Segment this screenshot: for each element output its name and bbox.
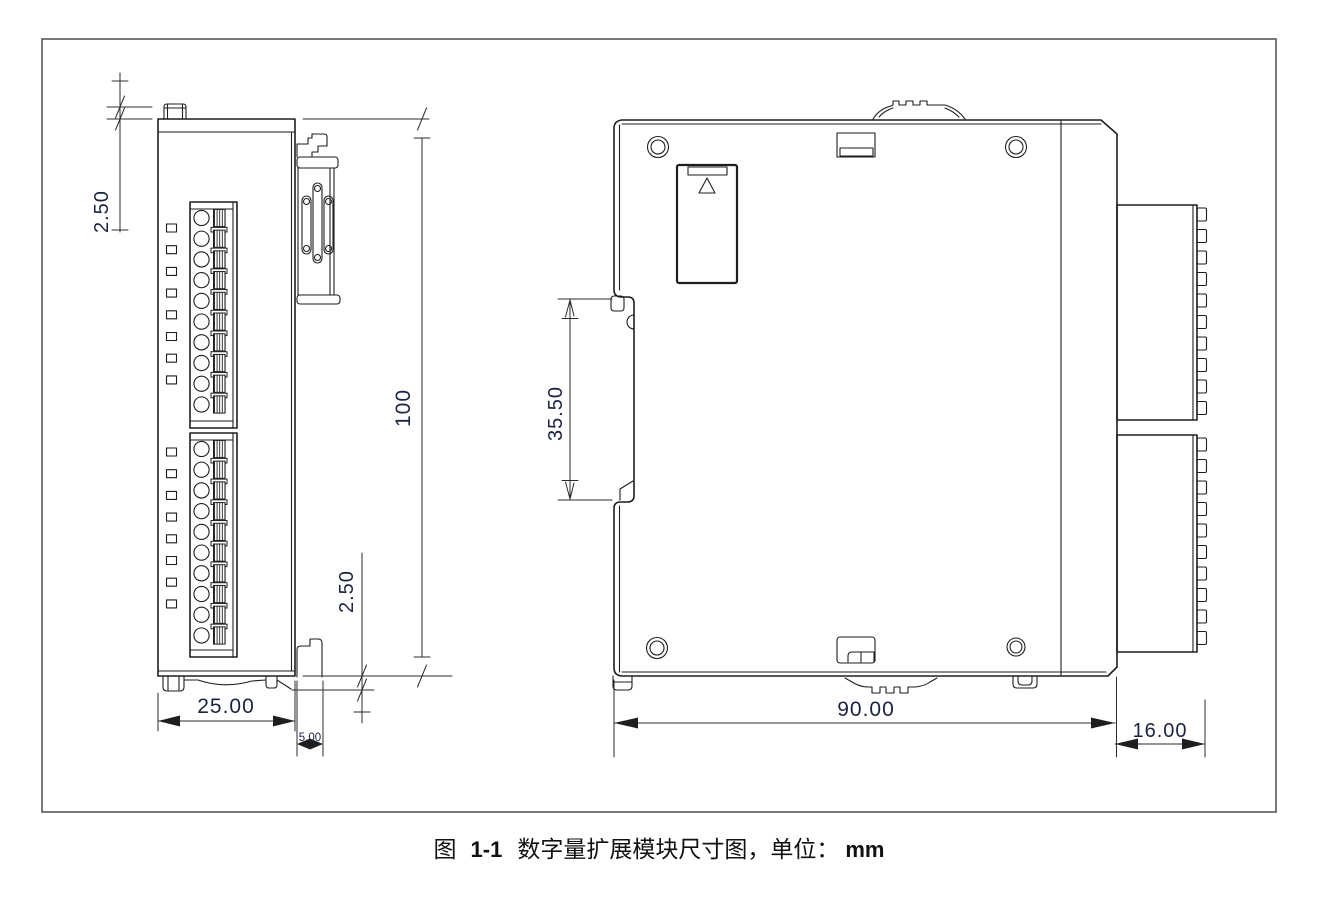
caption-title: 数字量扩展模块尺寸图，单位： (517, 837, 839, 862)
connector-ridge (1197, 546, 1207, 559)
connector-ridge (1197, 337, 1207, 350)
led-indicator (167, 491, 177, 499)
module-body-side (614, 120, 1117, 676)
din-hook (611, 296, 624, 311)
dimension-drawing: 2.50 100 25.00 (0, 0, 1319, 897)
connector-ridge (1197, 481, 1207, 494)
terminal-screw-hole (194, 441, 209, 456)
connector-lower (1117, 435, 1197, 652)
dim-label-din-slot-height: 35.50 (545, 386, 567, 441)
connector-ridge (1197, 251, 1207, 264)
connector-ridge (1197, 610, 1207, 623)
connector-ridge (1197, 632, 1207, 645)
led-indicator (167, 557, 177, 565)
terminal-positions (194, 209, 227, 644)
card-door (677, 165, 737, 283)
terminal-clamp (214, 523, 226, 540)
dim-label-front-height: 100 (392, 389, 415, 427)
connector-ridge (1197, 524, 1207, 537)
rear-bracket (297, 134, 340, 677)
caption-unit: mm (845, 837, 884, 862)
grip-comb-top (873, 101, 965, 119)
foot-tab-left (613, 676, 632, 690)
led-indicator (167, 246, 177, 254)
terminal-clamp (214, 565, 226, 582)
dim-label-front-top-offset: 2.50 (91, 190, 113, 233)
connector-upper (1117, 205, 1197, 420)
rear-hook-bottom (297, 639, 322, 677)
led-indicator (167, 448, 177, 456)
terminal-screw-hole (194, 628, 209, 643)
terminal-screw-hole (194, 252, 209, 267)
connector-ridge (1197, 438, 1207, 451)
connector-ridges (1197, 208, 1207, 645)
dim-label-front-width: 25.00 (197, 695, 255, 718)
screw-hole-icon (648, 137, 669, 158)
terminal-screw-hole (194, 355, 209, 370)
connector-ridge (1197, 208, 1207, 221)
rear-plate (298, 168, 334, 295)
terminal-clamp (214, 292, 226, 309)
terminal-clamp (214, 396, 226, 413)
din-latch (837, 637, 875, 663)
terminal-clamp (214, 209, 226, 226)
dim-label-side-depth: 90.00 (837, 698, 895, 721)
led-indicator (167, 311, 177, 319)
terminal-clamp (214, 585, 226, 602)
screw-hole-icon (1007, 638, 1025, 656)
terminal-screw-hole (194, 566, 209, 581)
terminal-clamp (214, 544, 226, 561)
side-view (611, 101, 1207, 693)
terminal-screw-hole (194, 397, 209, 412)
led-indicators (167, 224, 177, 608)
dim-front-top-offset: 2.50 (91, 73, 152, 233)
led-indicator (167, 535, 177, 543)
mount-slot-top (837, 133, 875, 157)
terminal-clamp (214, 251, 226, 268)
caption-fig-label: 图 (434, 837, 457, 862)
connector-ridge (1197, 316, 1207, 329)
top-button (164, 104, 186, 119)
foot-tab-right (1013, 676, 1037, 688)
din-foot (620, 481, 633, 500)
rear-hook-top (297, 134, 327, 157)
document-page: 2.50 100 25.00 (0, 0, 1319, 897)
rear-plate-bottom-cap (297, 295, 340, 304)
dim-front-height: 100 (303, 108, 452, 687)
connector-ridge (1197, 589, 1207, 602)
din-clip-front (163, 676, 291, 691)
terminal-screw-hole (194, 376, 209, 391)
din-groove-notch (627, 315, 634, 329)
dim-front-bottom-offset: 2.50 (292, 553, 374, 723)
connector-ridge (1197, 567, 1207, 580)
terminal-clamp (214, 230, 226, 247)
terminal-clamp (214, 606, 226, 623)
led-indicator (167, 513, 177, 521)
terminal-screw-hole (194, 231, 209, 246)
led-indicator (167, 354, 177, 362)
connector-ridge (1197, 503, 1207, 516)
terminal-clamp (214, 375, 226, 392)
terminal-clamp (214, 627, 226, 644)
terminal-screw-hole (194, 462, 209, 477)
terminal-clamp (214, 482, 226, 499)
led-indicator (167, 333, 177, 341)
dim-label-front-bottom-offset: 2.50 (336, 570, 358, 613)
connector-ridge (1197, 273, 1207, 286)
rear-plate-top-cap (297, 157, 338, 168)
front-view (158, 104, 340, 691)
terminal-clamp (214, 272, 226, 289)
terminal-screw-hole (194, 273, 209, 288)
dim-connector-depth: 16.00 (1115, 700, 1205, 757)
terminal-screw-hole (194, 293, 209, 308)
terminal-screw-hole (194, 504, 209, 519)
terminal-screw-hole (194, 483, 209, 498)
led-indicator (167, 470, 177, 478)
terminal-clamp (214, 440, 226, 457)
terminal-screw-hole (194, 210, 209, 225)
connector-ridge (1197, 380, 1207, 393)
terminal-screw-hole (194, 524, 209, 539)
led-indicator (167, 600, 177, 608)
dim-label-rear-hook-depth: 5.00 (299, 732, 321, 744)
terminal-screw-hole (194, 586, 209, 601)
terminal-clamp (214, 461, 226, 478)
grip-comb-bottom (845, 678, 937, 693)
figure-caption: 图 1-1 数字量扩展模块尺寸图，单位： mm (434, 837, 885, 862)
led-indicator (167, 267, 177, 275)
screw-hole-icon (647, 638, 668, 659)
dim-side-depth: 90.00 (614, 677, 1117, 757)
screw-hole-icon (1006, 137, 1027, 158)
terminal-clamp (214, 334, 226, 351)
triangle-icon (699, 178, 715, 193)
led-indicator (167, 224, 177, 232)
terminal-screw-hole (194, 314, 209, 329)
terminal-clamp (214, 503, 226, 520)
connector-ridge (1197, 359, 1207, 372)
connector-ridge (1197, 230, 1207, 243)
led-indicator (167, 289, 177, 297)
terminal-screw-hole (194, 335, 209, 350)
led-indicator (167, 376, 177, 384)
terminal-screw-hole (194, 545, 209, 560)
connector-ridge (1197, 460, 1207, 473)
connector-ridge (1197, 402, 1207, 415)
led-indicator (167, 578, 177, 586)
dim-rear-hook-depth: 5.00 (297, 681, 323, 756)
rear-slot-center (313, 183, 322, 263)
dim-din-slot-height: 35.50 (545, 299, 612, 500)
connector-ridge (1197, 294, 1207, 307)
terminal-screw-hole (194, 607, 209, 622)
dim-label-connector-depth: 16.00 (1132, 720, 1187, 742)
caption-figure-number: 1-1 (471, 837, 503, 862)
terminal-clamp (214, 354, 226, 371)
terminal-clamp (214, 313, 226, 330)
